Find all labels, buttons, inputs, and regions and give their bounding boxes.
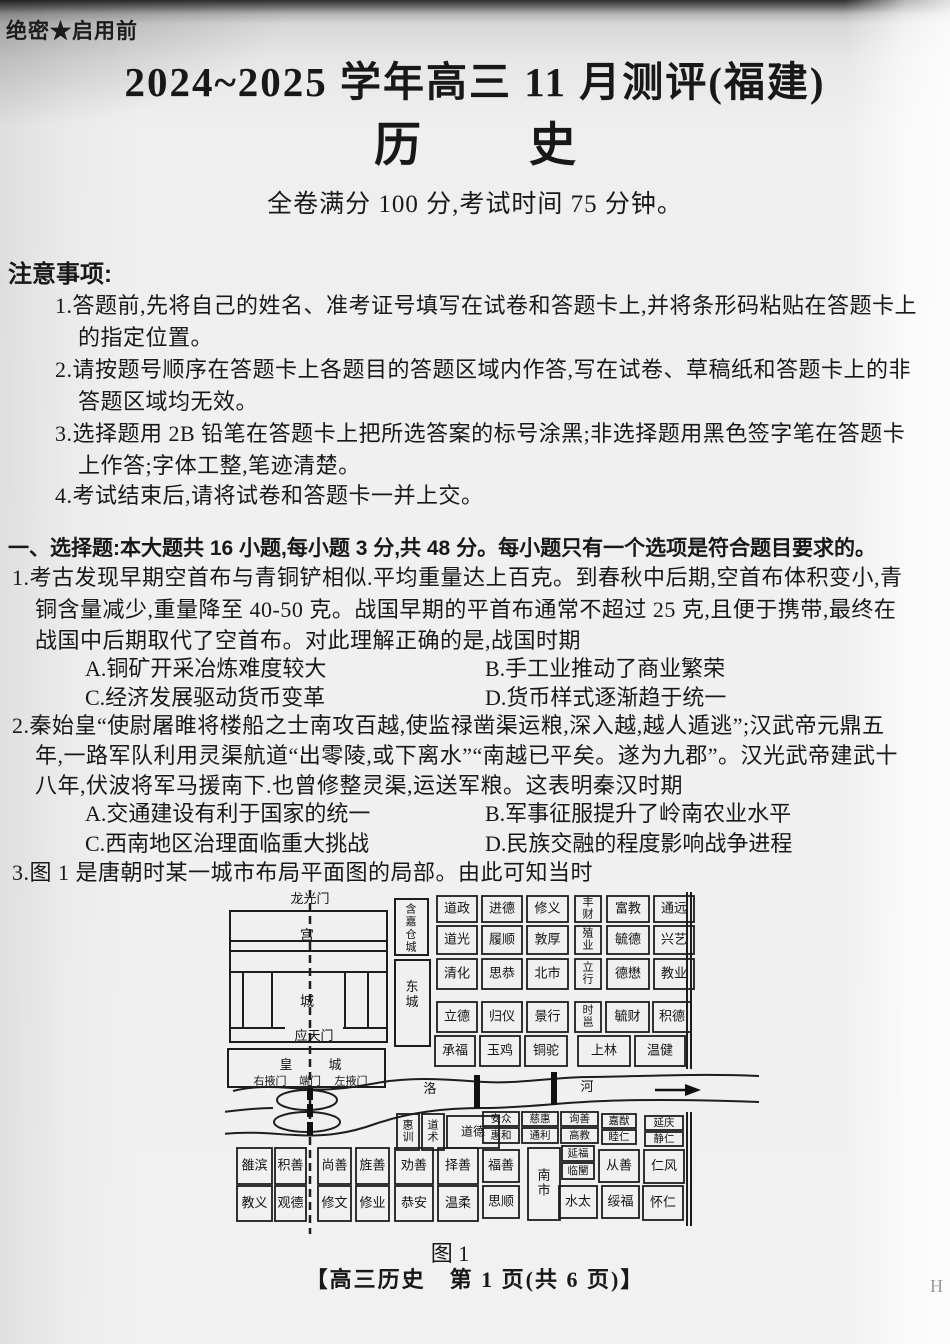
city-label: 宫 — [300, 928, 314, 944]
city-map-svg: 道政进德修义道光履顺敦厚清化思恭北市立德归仪景行承福玉鸡铜驼丰财富教通远殖业毓德… — [225, 884, 765, 1244]
ward-label: 北市 — [534, 965, 560, 980]
ward-label: 道光 — [444, 931, 470, 946]
q1-option-a: A.铜矿开采冶炼难度较大 — [85, 651, 326, 683]
ward-label: 修义 — [534, 900, 560, 915]
ward-label: 尚善 — [321, 1157, 347, 1172]
ward-label: 立 — [583, 959, 594, 973]
ward-label: 高教 — [569, 1128, 590, 1141]
ward-label: 道政 — [444, 900, 470, 915]
ward-label: 教义 — [241, 1195, 267, 1210]
ward-label: 恭安 — [401, 1195, 427, 1210]
city-label: 左掖门 — [335, 1074, 368, 1088]
ward-label: 归仪 — [489, 1008, 515, 1023]
grid-right-border — [687, 892, 691, 1226]
exam-page: 绝密★启用前 2024~2025 学年高三 11 月测评(福建) 历史 全卷满分… — [0, 0, 950, 1344]
notice-line: 1.答题前,先将自己的姓名、准考证号填写在试卷和答题卡上,并将条形码粘贴在答题卡… — [55, 288, 917, 320]
ward-label: 市 — [537, 1182, 550, 1197]
axis-bridge-marks — [307, 1088, 313, 1135]
city-label: 皇 — [279, 1057, 292, 1072]
city-label: 城 — [406, 940, 417, 953]
q2-option-a: A.交通建设有利于国家的统一 — [85, 796, 370, 828]
ward-label: 询善 — [569, 1112, 590, 1125]
ward-label: 劝善 — [401, 1157, 427, 1172]
subject-title: 历史 — [0, 106, 950, 175]
ward-label: 积善 — [277, 1157, 303, 1172]
city-label: 东 — [405, 979, 418, 994]
ward-label: 积德 — [659, 1008, 685, 1023]
ward-label: 静仁 — [654, 1132, 675, 1145]
ward-label: 邕 — [583, 1016, 594, 1029]
city-label: 城 — [300, 994, 314, 1010]
score-line: 全卷满分 100 分,考试时间 75 分钟。 — [0, 184, 950, 220]
city-label: 应天门 — [294, 1028, 333, 1043]
subject-char-right: 史 — [529, 120, 576, 172]
notice-line: 3.选择题用 2B 铅笔在答题卡上把所选答案的标号涂黑;非选择题用黑色签字笔在答… — [55, 416, 905, 448]
subject-char-left: 历 — [374, 120, 421, 172]
ward-label: 上林 — [591, 1042, 617, 1057]
ward-label: 毓财 — [614, 1008, 640, 1023]
river-flow-arrow-icon — [655, 1084, 701, 1096]
ward-label: 行 — [583, 973, 594, 986]
ward-label: 雒滨 — [241, 1157, 267, 1172]
q2-option-b: B.军事征服提升了岭南农业水平 — [485, 796, 791, 828]
ward-label: 思恭 — [489, 965, 515, 980]
ward-label: 水太 — [565, 1193, 591, 1208]
city-label: 龙光门 — [290, 891, 329, 906]
ward-label: 修业 — [359, 1195, 385, 1210]
q2-option-d: D.民族交融的程度影响战争进程 — [485, 826, 792, 858]
ward-label: 景行 — [534, 1008, 560, 1023]
q1-stem-line: 1.考古发现早期空首布与青铜铲相似.平均重量达上百克。到春秋中后期,空首布体积变… — [12, 560, 903, 592]
ward-label: 道 — [428, 1117, 439, 1131]
ward-label: 教业 — [661, 965, 687, 980]
ward-label: 仁风 — [651, 1158, 677, 1173]
bridge-mark — [474, 1075, 480, 1108]
ward-label: 业 — [583, 939, 594, 952]
ward-label: 玉鸡 — [487, 1042, 513, 1057]
notice-heading: 注意事项: — [8, 254, 112, 289]
q2-stem-line: 年,一路军队利用灵渠航道“出零陵,或下离水”“南越已平矣。遂为九郡”。汉光武帝建… — [35, 738, 898, 770]
ward-label: 睦仁 — [609, 1130, 630, 1143]
ward-label: 富教 — [615, 900, 641, 915]
ward-label: 毓德 — [615, 931, 641, 946]
city-label: 含 — [406, 902, 417, 916]
ward-label: 通远 — [661, 900, 687, 915]
ward-label: 温健 — [647, 1042, 673, 1057]
ward-label: 铜驼 — [533, 1042, 559, 1057]
ward-label: 延庆 — [654, 1116, 675, 1129]
ward-label: 思顺 — [488, 1193, 514, 1208]
section-heading: 一、选择题:本大题共 16 小题,每小题 3 分,共 48 分。每小题只有一个选… — [8, 532, 876, 562]
ward-label: 择善 — [445, 1157, 471, 1172]
page-footer: 【高三历史 第 1 页(共 6 页)】 — [0, 1262, 950, 1294]
q3-stem: 3.图 1 是唐朝时某一城市布局平面图的局部。由此可知当时 — [12, 855, 593, 887]
q1-option-b: B.手工业推动了商业繁荣 — [485, 651, 725, 683]
notice-line: 的指定位置。 — [78, 320, 213, 352]
ward-label: 温柔 — [445, 1195, 471, 1210]
ward-label: 绥福 — [607, 1193, 633, 1208]
city-label: 右掖门 — [254, 1074, 287, 1088]
ward-label: 清化 — [444, 965, 470, 980]
city-label: 河 — [580, 1079, 593, 1094]
notice-line: 上作答;字体工整,笔迹清楚。 — [78, 448, 361, 480]
ward-label: 南 — [537, 1168, 550, 1183]
city-label: 端门 — [299, 1074, 321, 1088]
ward-label: 时 — [583, 1003, 594, 1016]
notice-line: 答题区域均无效。 — [78, 384, 258, 416]
figure-city-map: 道政进德修义道光履顺敦厚清化思恭北市立德归仪景行承福玉鸡铜驼丰财富教通远殖业毓德… — [225, 884, 765, 1244]
ward-label: 殖 — [583, 926, 594, 939]
notice-line: 2.请按题号顺序在答题卡上各题目的答题区域内作答,写在试卷、草稿纸和答题卡上的非 — [55, 352, 911, 384]
ward-label: 履顺 — [489, 931, 515, 946]
ward-label: 承福 — [442, 1042, 468, 1057]
city-label: 嘉 — [406, 914, 417, 928]
page-title: 2024~2025 学年高三 11 月测评(福建) — [0, 48, 950, 108]
city-label: 洛 — [423, 1081, 436, 1096]
ward-label: 惠 — [403, 1117, 414, 1131]
ward-label: 敦厚 — [534, 931, 560, 946]
ward-label: 训 — [403, 1131, 414, 1144]
ward-label: 惠和 — [491, 1128, 512, 1141]
ward-label: 福善 — [488, 1157, 514, 1172]
ward-label: 怀仁 — [650, 1194, 676, 1209]
q1-stem-line: 铜含量减少,重量降至 40-50 克。战国早期的平首布通常不超过 25 克,且便… — [35, 592, 896, 624]
city-label: 仓 — [406, 927, 417, 941]
q2-stem-line: 2.秦始皇“使尉屠睢将楼船之士南攻百越,使监禄凿渠运粮,深入越,越人遁逃”;汉武… — [12, 708, 885, 740]
ward-label: 从善 — [606, 1157, 632, 1172]
ward-label: 旌善 — [359, 1157, 385, 1172]
ward-label: 观德 — [277, 1195, 303, 1210]
ward-label: 财 — [583, 907, 594, 921]
bridge-mark — [551, 1072, 557, 1105]
security-label: 绝密★启用前 — [6, 15, 138, 45]
ward-label: 道德 — [461, 1123, 485, 1138]
ward-label: 嘉猷 — [609, 1114, 630, 1127]
ward-label: 慈惠 — [530, 1112, 551, 1125]
ward-label: 临闉 — [568, 1164, 589, 1177]
ward-label: 兴艺 — [661, 931, 687, 946]
ward-label: 德懋 — [615, 965, 641, 980]
ward-label: 进德 — [489, 900, 515, 915]
ward-label: 通利 — [530, 1129, 551, 1141]
ward-label: 立德 — [444, 1008, 470, 1023]
ward-label: 修文 — [321, 1195, 347, 1210]
q2-option-c: C.西南地区治理面临重大挑战 — [85, 826, 369, 858]
notice-line: 4.考试结束后,请将试卷和答题卡一并上交。 — [55, 478, 484, 510]
city-label: 城 — [328, 1057, 341, 1072]
ward-label: 延福 — [568, 1146, 589, 1159]
ward-label: 安众 — [491, 1112, 512, 1125]
ward-label: 丰 — [583, 895, 594, 908]
city-label: 城 — [405, 994, 418, 1009]
footer-corner-mark: H — [930, 1276, 943, 1297]
ward-label: 术 — [428, 1131, 439, 1144]
